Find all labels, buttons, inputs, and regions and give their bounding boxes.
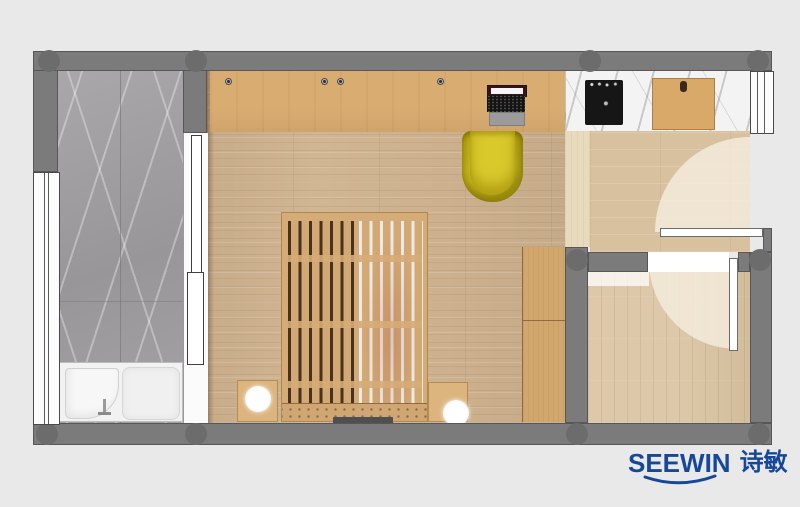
sliding-door-panel	[191, 135, 202, 295]
wall-column	[38, 50, 60, 72]
sliding-door-panel	[187, 272, 204, 365]
wall-storage-left	[565, 247, 588, 423]
window-mullion	[764, 72, 765, 133]
storage-door-opening	[648, 252, 729, 272]
brand-wordmark: SEEWIN	[628, 450, 731, 476]
bed-cross-rail	[287, 381, 422, 388]
wall-column	[579, 50, 601, 72]
wall-top	[33, 51, 772, 71]
wall-right-lower	[750, 252, 772, 423]
bed-center-rail	[355, 221, 359, 408]
brand-cjk-name: 诗敏	[740, 450, 788, 474]
wall-right-stub	[763, 228, 772, 252]
wall-column	[566, 423, 588, 445]
wardrobe-door-split	[523, 320, 566, 321]
bed-cross-rail	[287, 321, 422, 328]
bed-cross-rail	[287, 255, 422, 262]
marble-seam	[58, 301, 183, 302]
cooktop	[585, 80, 623, 125]
drawer-handle	[321, 78, 328, 85]
sliding-door-track	[183, 133, 208, 423]
laptop-tray	[489, 112, 525, 126]
hall-strip-floor	[565, 130, 591, 247]
laptop-lcd	[491, 88, 523, 94]
entry-door-panel	[660, 228, 763, 237]
window-mullion	[44, 173, 45, 424]
storage-door-panel	[729, 258, 738, 351]
drawer-handle	[437, 78, 444, 85]
brand-swoosh-icon	[642, 474, 718, 488]
bed-slats-left	[288, 221, 355, 408]
faucet	[98, 412, 111, 415]
bed-slats-right	[359, 221, 423, 408]
drawer-handle	[337, 78, 344, 85]
wall-left-upper	[33, 70, 58, 172]
wardrobe	[522, 247, 566, 422]
window-left	[33, 172, 60, 425]
laptop-keyboard	[487, 95, 525, 112]
window-right	[750, 71, 774, 134]
wall-bath-divider	[183, 70, 207, 133]
cutting-board-handle	[680, 81, 687, 92]
wall-column	[185, 423, 207, 445]
bathtub	[58, 362, 183, 422]
desk-chair	[462, 131, 523, 202]
chair-seat	[470, 131, 515, 195]
slatted-bed	[281, 212, 428, 422]
wall-bottom	[33, 423, 772, 445]
window-mullion	[757, 72, 758, 133]
wall-column	[566, 249, 588, 271]
wall-column	[747, 50, 769, 72]
tub-basin	[122, 367, 180, 420]
floor-plan-canvas: SEEWIN 诗敏	[0, 0, 800, 507]
brand-logo: SEEWIN 诗敏	[628, 450, 788, 476]
storage-door-threshold	[588, 272, 649, 286]
window-mullion	[48, 173, 49, 424]
wall-column	[748, 423, 770, 445]
round-lamp-left	[245, 386, 271, 412]
wall-storage-top	[588, 252, 648, 272]
wall-column	[749, 249, 771, 271]
drawer-handle	[225, 78, 232, 85]
wall-column	[36, 423, 58, 445]
cutting-board	[652, 78, 715, 130]
wall-column	[185, 50, 207, 72]
